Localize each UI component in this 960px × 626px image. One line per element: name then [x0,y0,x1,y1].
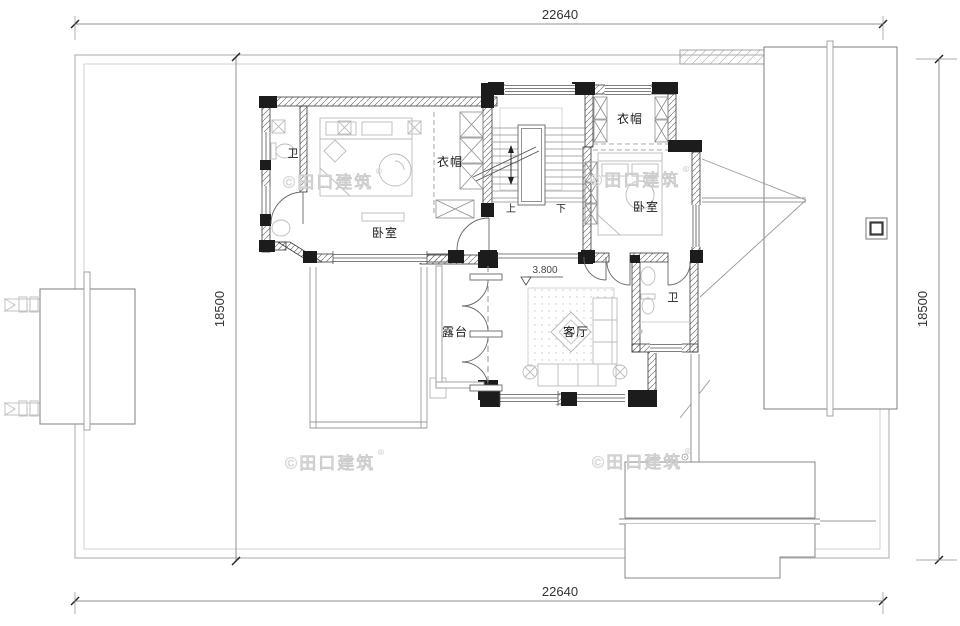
sofa-right [593,298,617,366]
label-living-room: 客厅 [563,324,589,339]
watermark-text: ©田口建筑 [283,172,374,192]
floor-plan-canvas: 上 下 [0,0,960,626]
chimney [866,218,887,239]
watermark-text: ©田口建筑 [590,170,681,190]
dimension-left: 18500 [212,53,240,565]
dim-right-value: 18500 [915,291,930,327]
label-closet-right: 衣帽 [617,111,643,126]
watermark-reg-icon: ® [376,167,382,176]
stair-well [518,125,545,205]
watermark-reg-icon: ® [683,165,689,174]
dim-left-value: 18500 [212,291,227,327]
watermark-text: ©田口建筑 [285,453,376,473]
watermark-text: ©田口建筑 [592,452,683,472]
label-terrace: 露台 [442,324,468,339]
dim-bottom-value: 22640 [542,584,578,599]
window-bath-left-2 [260,186,272,214]
bed-right [598,153,662,235]
roof-eave-band [680,50,764,64]
window-living-2 [577,393,625,404]
dimension-top: 22640 [71,7,887,40]
stair-down-label: 下 [556,204,566,215]
label-bath-left: 卫 [288,148,299,160]
lower-roof-outline [310,262,427,428]
label-bedroom-right: 卧室 [633,199,659,214]
label-bath-right: 卫 [668,292,679,304]
left-pergola-top [4,297,40,312]
window-stair [505,84,575,95]
sofa-bottom [538,364,616,386]
watermark-reg-icon: ® [685,447,691,456]
right-roof [680,41,897,418]
watermark-4: ©田口建筑 ® [592,447,691,472]
window-bedroom-right [691,205,701,247]
stair-up-label: 上 [506,203,516,215]
dimension-bottom: 22640 [71,584,887,614]
window-bath-left-1 [260,132,272,160]
window-bath-right [650,343,682,353]
window-living-1 [500,391,558,406]
floor-plan-svg: 上 下 [0,0,960,626]
dimension-right: 18500 [915,55,957,564]
watermark-3: ©田口建筑 ® [285,448,384,473]
left-pergola-bottom [4,401,40,416]
left-roof [40,272,135,430]
label-bedroom-left: 卧室 [372,225,398,240]
label-closet-left: 衣帽 [437,154,463,169]
watermark-reg-icon: ® [378,448,384,457]
level-value: 3.800 [532,265,557,276]
dim-top-value: 22640 [542,7,578,22]
window-closet-right [605,84,651,95]
